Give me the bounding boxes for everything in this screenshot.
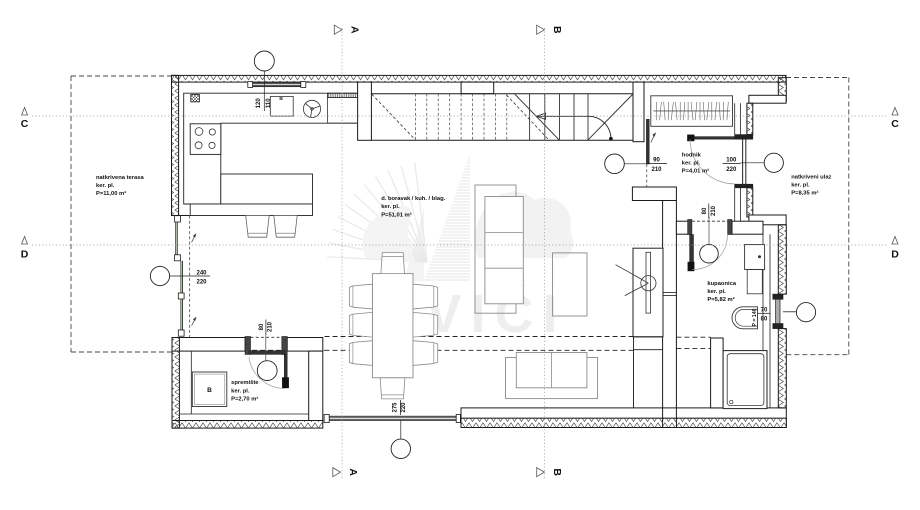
svg-text:B: B xyxy=(551,26,563,34)
svg-text:C: C xyxy=(891,118,899,130)
svg-text:A: A xyxy=(347,468,359,476)
svg-text:210: 210 xyxy=(711,205,717,216)
svg-text:110: 110 xyxy=(266,98,272,108)
svg-text:B: B xyxy=(551,468,563,476)
svg-text:100: 100 xyxy=(726,157,737,163)
svg-text:d. boravak / kuh. / blag.: d. boravak / kuh. / blag. xyxy=(381,196,445,202)
svg-text:P=5,82 m²: P=5,82 m² xyxy=(707,296,734,303)
svg-text:220: 220 xyxy=(726,167,737,173)
svg-text:P=11,00 m²: P=11,00 m² xyxy=(96,190,126,197)
svg-text:210: 210 xyxy=(651,167,662,173)
svg-text:90: 90 xyxy=(653,157,660,163)
svg-text:ker. pl.: ker. pl. xyxy=(96,183,115,189)
svg-text:D: D xyxy=(891,249,899,261)
svg-text:ker. pl.: ker. pl. xyxy=(231,388,250,394)
svg-text:natkriveni ulaz: natkriveni ulaz xyxy=(791,175,831,181)
svg-text:P=4,01 m²: P=4,01 m² xyxy=(682,168,709,175)
svg-text:P = 140: P = 140 xyxy=(752,308,758,326)
svg-text:A: A xyxy=(349,26,361,34)
svg-text:D: D xyxy=(21,249,29,261)
svg-text:hodnik: hodnik xyxy=(682,153,702,159)
svg-text:ker. pl.: ker. pl. xyxy=(791,183,810,189)
svg-text:120: 120 xyxy=(256,98,262,109)
svg-text:ker. pl.: ker. pl. xyxy=(381,204,400,210)
svg-text:C: C xyxy=(21,118,29,130)
svg-text:70: 70 xyxy=(761,307,768,313)
svg-text:275: 275 xyxy=(393,402,399,413)
svg-text:80: 80 xyxy=(761,316,768,322)
svg-text:ker. pl.: ker. pl. xyxy=(707,289,726,295)
svg-text:210: 210 xyxy=(267,321,273,332)
svg-text:spremište: spremište xyxy=(231,380,259,386)
svg-text:ker. pl.: ker. pl. xyxy=(682,161,701,167)
svg-text:natkrivena terasa: natkrivena terasa xyxy=(96,175,144,181)
svg-text:P=51,01 m²: P=51,01 m² xyxy=(381,211,412,218)
svg-text:P=2,70 m²: P=2,70 m² xyxy=(231,396,258,403)
svg-text:80: 80 xyxy=(702,207,708,214)
svg-text:220: 220 xyxy=(196,279,207,285)
svg-text:80: 80 xyxy=(259,323,265,330)
svg-text:220: 220 xyxy=(401,402,407,413)
svg-text:B: B xyxy=(207,387,212,394)
svg-text:kupaonica: kupaonica xyxy=(707,281,736,287)
svg-text:P=8,35 m²: P=8,35 m² xyxy=(791,190,818,197)
svg-text:240: 240 xyxy=(196,270,207,276)
